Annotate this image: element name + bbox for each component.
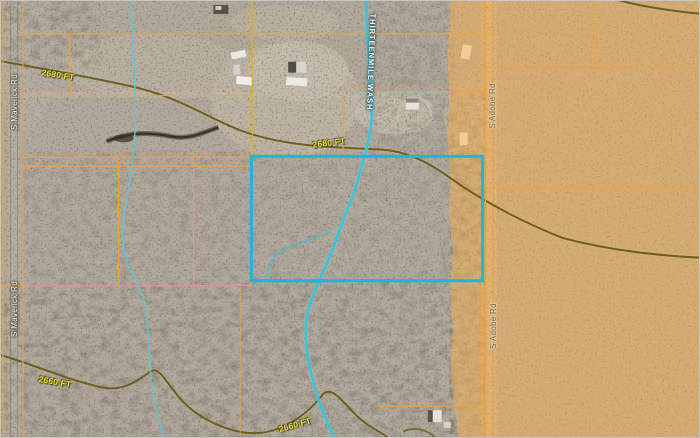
map-canvas [1, 1, 699, 437]
satellite-map[interactable]: S Maverick Rd S Maverick Rd S Adobe Rd S… [0, 0, 700, 438]
